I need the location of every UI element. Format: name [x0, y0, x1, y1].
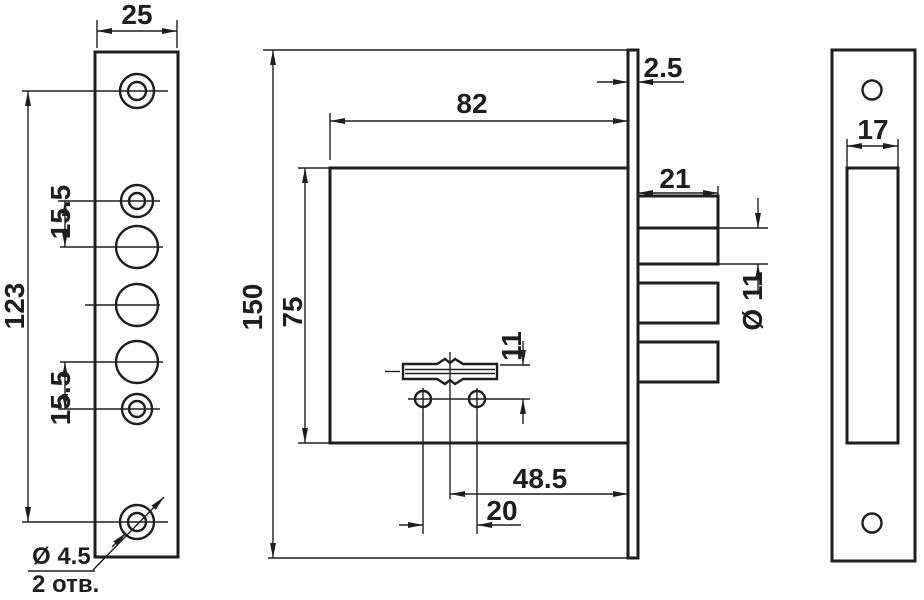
- dim-label-15-5-lower: 15.5: [45, 371, 76, 426]
- dim-screw-span: 123: [0, 91, 30, 522]
- dim-case-depth: 82: [330, 88, 628, 160]
- dim-plate-width: 25: [97, 0, 177, 48]
- front-plate-view: 25 123 15.5 15.5 Ø 4.5 2 отв.: [0, 0, 178, 598]
- dim-label-48-5: 48.5: [513, 463, 568, 494]
- dim-label-15-5-upper: 15.5: [45, 185, 76, 240]
- dim-label-123: 123: [0, 283, 30, 330]
- dim-label-21: 21: [659, 163, 690, 194]
- dim-label-20: 20: [486, 495, 517, 526]
- dim-bolt-throw: 21: [638, 163, 718, 196]
- bolt-4: [638, 342, 718, 382]
- drawing-canvas: 25 123 15.5 15.5 Ø 4.5 2 отв.: [0, 0, 924, 600]
- strike-screw-hole-bottom: [863, 514, 882, 533]
- strike-plate-view: 17: [832, 50, 915, 561]
- dim-bolt-diameter: Ø 11: [718, 198, 768, 331]
- bolt-1: [638, 196, 718, 228]
- dim-label-25: 25: [121, 0, 152, 30]
- bolt-3: [638, 283, 718, 323]
- lock-case: [330, 168, 628, 443]
- note-diameter: Ø 4.5: [32, 543, 91, 570]
- dim-label-11: 11: [496, 331, 527, 361]
- lock-body-view: 150 75 82 2.5 21: [237, 50, 768, 558]
- lock-technical-drawing: 25 123 15.5 15.5 Ø 4.5 2 отв.: [0, 0, 924, 600]
- note-quantity: 2 отв.: [32, 571, 99, 598]
- dim-slot-width: 17: [847, 114, 898, 168]
- dim-label-75: 75: [277, 296, 308, 327]
- dim-screw-spacing: 20: [399, 495, 521, 526]
- dim-case-height: 75: [277, 168, 308, 443]
- bolt-2: [638, 228, 718, 264]
- dim-label-17: 17: [857, 114, 888, 145]
- dim-label-d11: Ø 11: [737, 271, 768, 330]
- dim-keyhole-offset: 11: [496, 331, 530, 424]
- dim-pitch-upper: 15.5: [45, 185, 76, 247]
- strike-slot: [847, 168, 898, 443]
- dim-overall-height: 150: [237, 50, 273, 558]
- keyhole: [385, 352, 497, 499]
- strike-screw-hole-top: [863, 81, 882, 100]
- dim-label-2-5: 2.5: [644, 52, 683, 83]
- dim-faceplate-thickness: 2.5: [597, 52, 684, 83]
- dim-label-82: 82: [456, 88, 487, 119]
- dim-pitch-lower: 15.5: [45, 362, 76, 425]
- dim-label-150: 150: [237, 284, 268, 331]
